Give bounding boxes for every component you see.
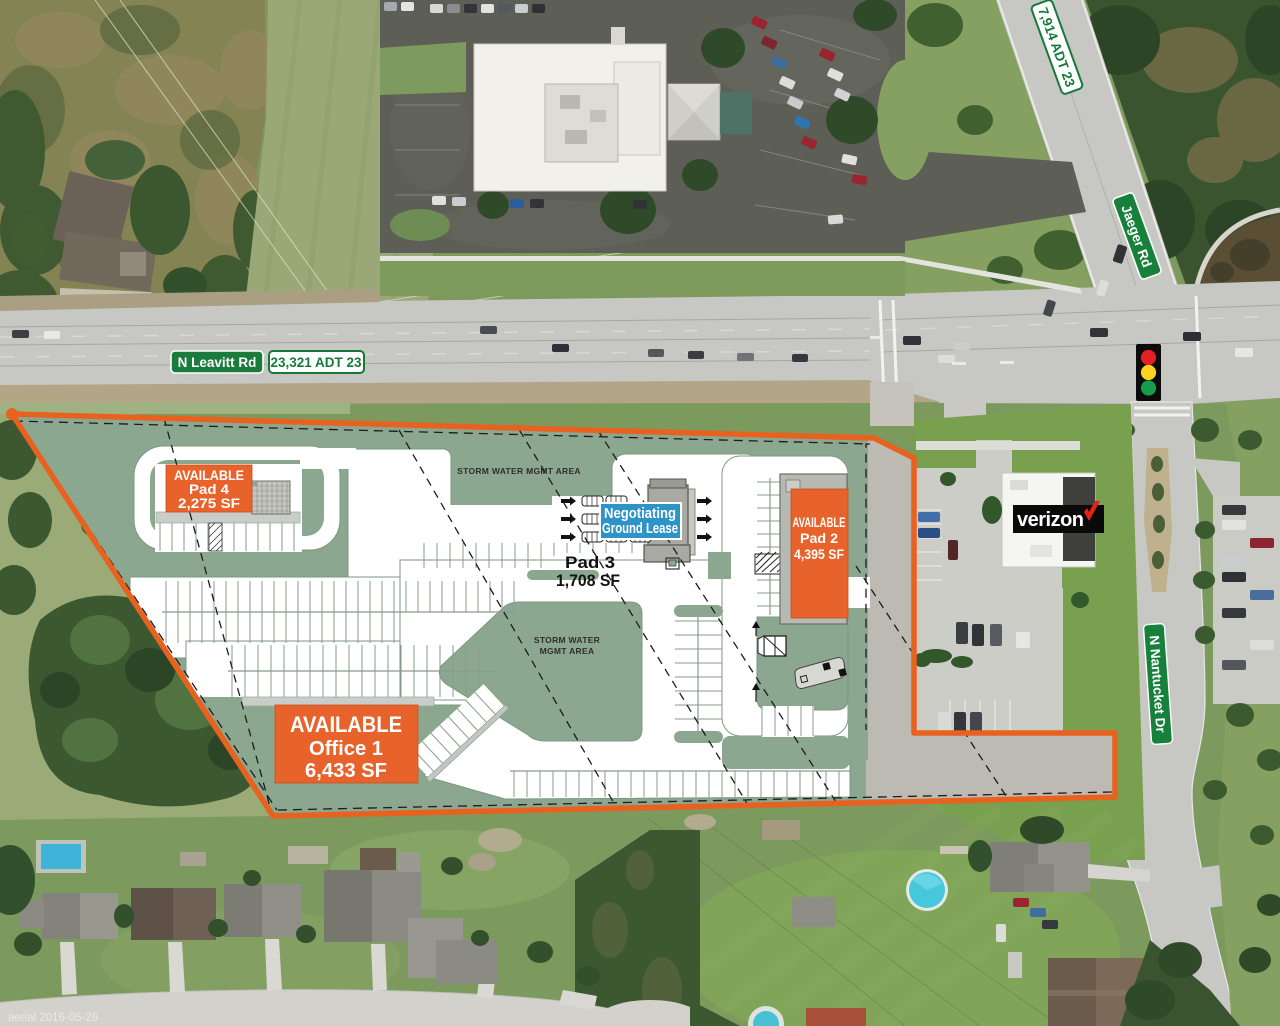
svg-text:STORM WATER MGMT AREA: STORM WATER MGMT AREA [457, 466, 581, 476]
svg-text:N Leavitt Rd: N Leavitt Rd [178, 355, 257, 370]
svg-text:MGMT AREA: MGMT AREA [540, 646, 595, 656]
svg-text:AVAILABLE: AVAILABLE [290, 712, 402, 737]
svg-text:Pad 3: Pad 3 [565, 553, 615, 572]
svg-text:verizon: verizon [1017, 509, 1084, 531]
svg-text:6,433 SF: 6,433 SF [305, 760, 387, 782]
svg-text:2,275 SF: 2,275 SF [178, 495, 240, 511]
svg-text:23,321 ADT 23: 23,321 ADT 23 [270, 355, 362, 370]
svg-text:Ground Lease: Ground Lease [602, 521, 678, 537]
svg-text:STORM WATER: STORM WATER [534, 635, 600, 645]
svg-text:1,708 SF: 1,708 SF [556, 571, 620, 590]
svg-text:4,395 SF: 4,395 SF [794, 546, 844, 562]
svg-text:AVAILABLE: AVAILABLE [793, 514, 846, 530]
svg-text:Office 1: Office 1 [309, 738, 383, 760]
svg-text:Pad 2: Pad 2 [800, 530, 838, 546]
svg-text:Negotiating: Negotiating [604, 506, 676, 522]
svg-text:aerial 2016-05-26: aerial 2016-05-26 [8, 1012, 98, 1024]
